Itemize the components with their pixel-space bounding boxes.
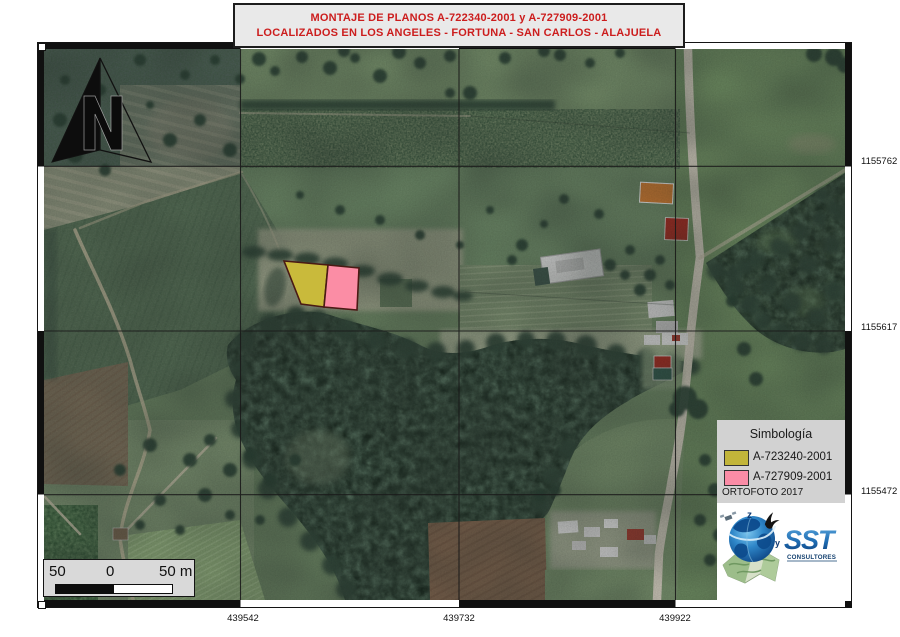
svg-text:z: z — [747, 510, 752, 521]
svg-text:y: y — [775, 538, 780, 548]
svg-text:CONSULTORES: CONSULTORES — [787, 554, 836, 561]
svg-text:SST: SST — [784, 525, 837, 555]
